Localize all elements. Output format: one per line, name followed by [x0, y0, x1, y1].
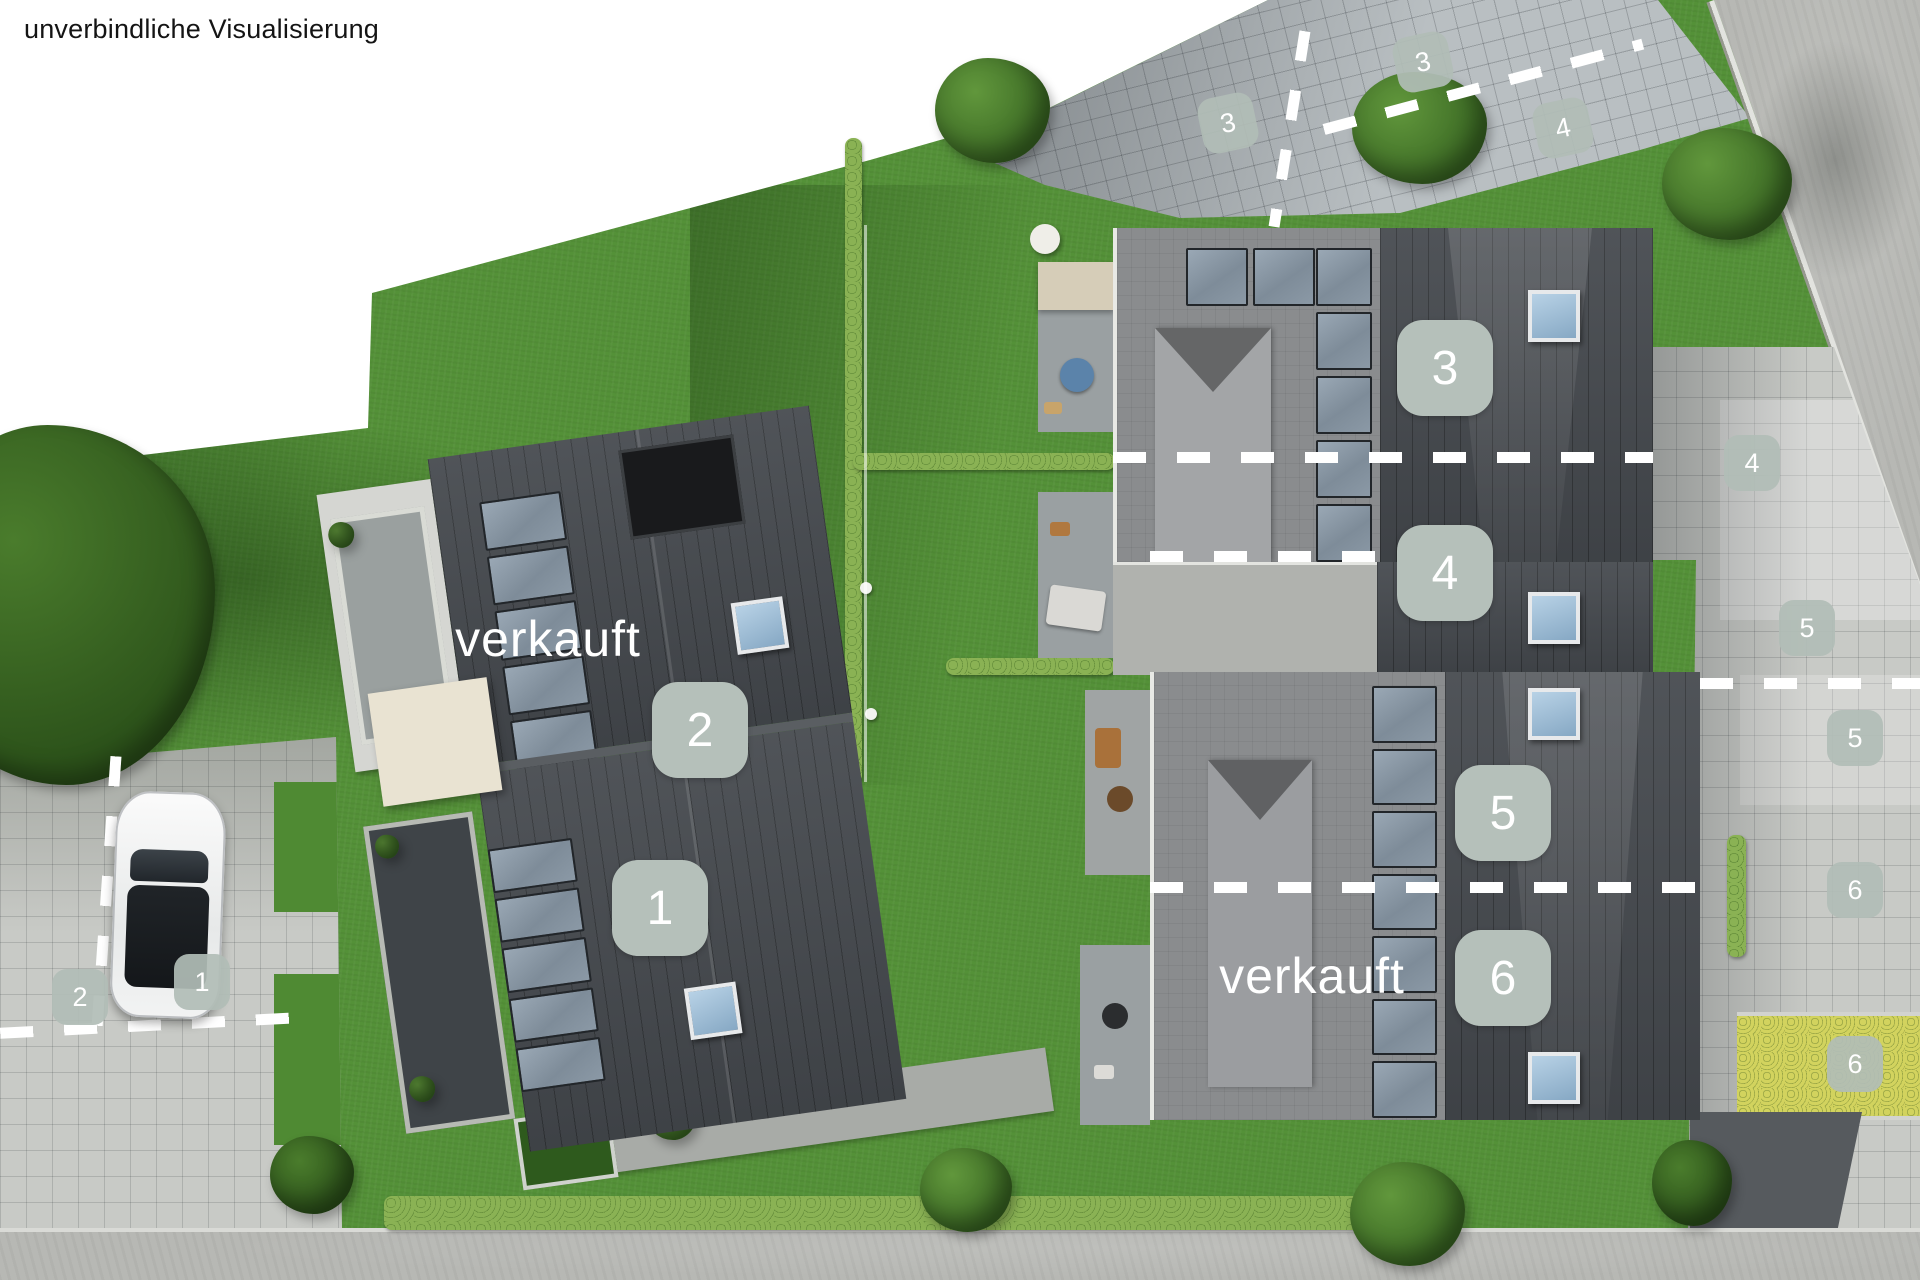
roof-window [731, 596, 790, 655]
solar-panel [1372, 749, 1437, 806]
building-left-units-1-2 [314, 406, 907, 1169]
patio-table [1107, 786, 1133, 812]
bush [270, 1136, 354, 1214]
tree [1662, 128, 1792, 240]
solar-panel [1372, 999, 1437, 1056]
page-title: unverbindliche Visualisierung [24, 14, 379, 45]
patio-lounger [1045, 584, 1106, 631]
roof-window [684, 981, 743, 1040]
parking-badge-5a: 5 [1779, 600, 1835, 656]
roof-access-block [1208, 760, 1312, 1087]
solar-panel [1372, 1061, 1437, 1118]
patio-bench [1095, 728, 1121, 768]
parking-badge-4b: 4 [1724, 435, 1780, 491]
entry-awning [368, 677, 503, 807]
solar-panel [1372, 686, 1437, 743]
roof-access-block [1155, 328, 1271, 562]
roof-terrace-dark [618, 434, 745, 539]
roof-window [1528, 688, 1580, 740]
boundary-dash-4-5 [1150, 551, 1412, 562]
unit-badge-4: 4 [1397, 525, 1493, 621]
patio-table [1060, 358, 1094, 392]
garden-square [274, 974, 342, 1145]
solar-panel-array-5-6 [1372, 686, 1437, 1118]
solar-panel [1316, 248, 1372, 306]
unit-badge-3: 3 [1397, 320, 1493, 416]
hedge-bottom-row [384, 1196, 1424, 1230]
roof-window [1528, 290, 1580, 342]
solar-panel [502, 937, 592, 993]
bush [920, 1148, 1012, 1232]
hedge-garden-divider [853, 453, 1115, 470]
parking-badge-1: 1 [174, 954, 230, 1010]
patio-unit-4 [1038, 492, 1114, 658]
boundary-dash-right-parking [1700, 678, 1920, 689]
unit-badge-1: 1 [612, 860, 708, 956]
garden-square [274, 782, 342, 912]
solar-panel-array-3-4 [1316, 248, 1372, 562]
unit-badge-5: 5 [1455, 765, 1551, 861]
junction-paving [1113, 562, 1377, 675]
street-bottom [0, 1228, 1920, 1280]
solar-panel [1372, 811, 1437, 868]
bush [935, 58, 1050, 163]
solar-panel [495, 888, 585, 944]
parking-hedge [1727, 835, 1746, 957]
solar-panel [1253, 248, 1315, 306]
bush [1652, 1140, 1732, 1226]
patio-chair [1044, 402, 1062, 414]
solar-panel [479, 491, 567, 551]
patio-unit-6 [1080, 945, 1150, 1125]
block-shadow [1155, 328, 1271, 392]
solar-panel [1316, 312, 1372, 370]
parking-badge-6b: 6 [1827, 1036, 1883, 1092]
parking-badge-5b: 5 [1827, 710, 1883, 766]
solar-panel [508, 987, 598, 1043]
pergola-awning [1038, 262, 1114, 310]
hedge-garden-divider [946, 658, 1114, 675]
parking-badge-2: 2 [52, 969, 108, 1025]
garden-fence [864, 225, 867, 782]
patio-unit-3 [1038, 262, 1114, 432]
grill [1102, 1003, 1128, 1029]
roof-window [1528, 592, 1580, 644]
solar-panel [487, 546, 575, 606]
patio-chair [1050, 522, 1070, 536]
sold-label-right: verkauft [1160, 947, 1464, 1005]
balcony-plant [408, 1074, 437, 1103]
block-shadow [1208, 760, 1312, 820]
solar-panel [1316, 440, 1372, 498]
parking-badge-6a: 6 [1827, 862, 1883, 918]
patio-unit-5 [1085, 690, 1151, 875]
site-plan-visualization: 1 2 3 4 5 6 1 2 3 3 4 4 5 5 6 6 verkauft… [0, 0, 1920, 1280]
unit-badge-6: 6 [1455, 930, 1551, 1026]
parasol [1030, 224, 1060, 254]
boundary-dash-5-6 [1150, 882, 1702, 893]
unit-badge-2: 2 [652, 682, 748, 778]
solar-panel [1186, 248, 1248, 306]
balcony-plant [374, 833, 401, 860]
patio-chair [1094, 1065, 1114, 1079]
building-right-units-5-6 [1150, 672, 1700, 1120]
building-right-units-3-4 [1113, 228, 1653, 562]
solar-panel [1316, 376, 1372, 434]
car-windshield [130, 849, 209, 884]
tree [1350, 1162, 1465, 1266]
roof-window [1528, 1052, 1580, 1104]
sold-label-left: verkauft [398, 610, 698, 668]
boundary-dash-3-4 [1113, 452, 1653, 463]
